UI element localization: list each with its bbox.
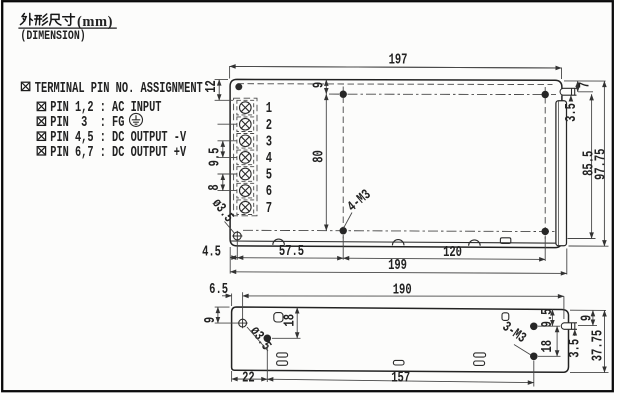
- svg-text:6.5: 6.5: [209, 280, 228, 297]
- svg-text:37.75: 37.75: [589, 330, 606, 361]
- svg-text:8: 8: [205, 184, 222, 190]
- svg-text:57.5: 57.5: [279, 243, 304, 260]
- svg-text:120: 120: [443, 243, 462, 260]
- svg-text:5: 5: [266, 166, 272, 183]
- svg-text:199: 199: [388, 257, 407, 274]
- svg-text:7: 7: [266, 199, 272, 216]
- svg-text:PIN 1,2 : AC INPUT: PIN 1,2 : AC INPUT: [50, 100, 162, 116]
- svg-text:7: 7: [576, 82, 593, 88]
- svg-text:2: 2: [266, 116, 272, 133]
- svg-text:80: 80: [310, 150, 327, 163]
- svg-text:(mm): (mm): [77, 14, 113, 30]
- svg-text:4.5: 4.5: [202, 243, 221, 260]
- svg-text:18: 18: [281, 314, 298, 327]
- svg-text:3: 3: [266, 133, 272, 150]
- svg-text:TERMINAL PIN NO. ASSIGNMENT: TERMINAL PIN NO. ASSIGNMENT: [35, 80, 203, 96]
- svg-text:ø3.5: ø3.5: [247, 323, 276, 353]
- svg-text:4: 4: [266, 149, 273, 166]
- svg-text:9: 9: [310, 82, 327, 88]
- svg-text:ø3.5: ø3.5: [208, 195, 237, 225]
- svg-text:18: 18: [539, 340, 556, 353]
- svg-text:(DIMENSION): (DIMENSION): [20, 29, 85, 44]
- svg-text:9: 9: [578, 315, 595, 321]
- svg-text:190: 190: [393, 281, 412, 298]
- svg-text:PIN 3 : FG: PIN 3 : FG: [50, 114, 124, 130]
- svg-text:157: 157: [391, 369, 410, 386]
- svg-text:1: 1: [266, 100, 273, 117]
- svg-text:197: 197: [389, 51, 408, 68]
- svg-text:22: 22: [242, 369, 255, 386]
- svg-text:97.75: 97.75: [592, 149, 609, 180]
- svg-text:9.5: 9.5: [538, 309, 555, 328]
- svg-text:PIN 6,7 : DC OUTPUT +V: PIN 6,7 : DC OUTPUT +V: [50, 144, 186, 160]
- svg-text:4-M3: 4-M3: [344, 186, 374, 215]
- svg-text:6: 6: [266, 183, 272, 200]
- svg-text:12: 12: [203, 80, 220, 93]
- svg-text:3.5: 3.5: [566, 339, 583, 358]
- svg-text:3.5: 3.5: [563, 103, 580, 122]
- svg-text:3-M3: 3-M3: [499, 318, 529, 347]
- svg-text:9.5: 9.5: [206, 148, 223, 167]
- svg-text:9: 9: [201, 317, 218, 323]
